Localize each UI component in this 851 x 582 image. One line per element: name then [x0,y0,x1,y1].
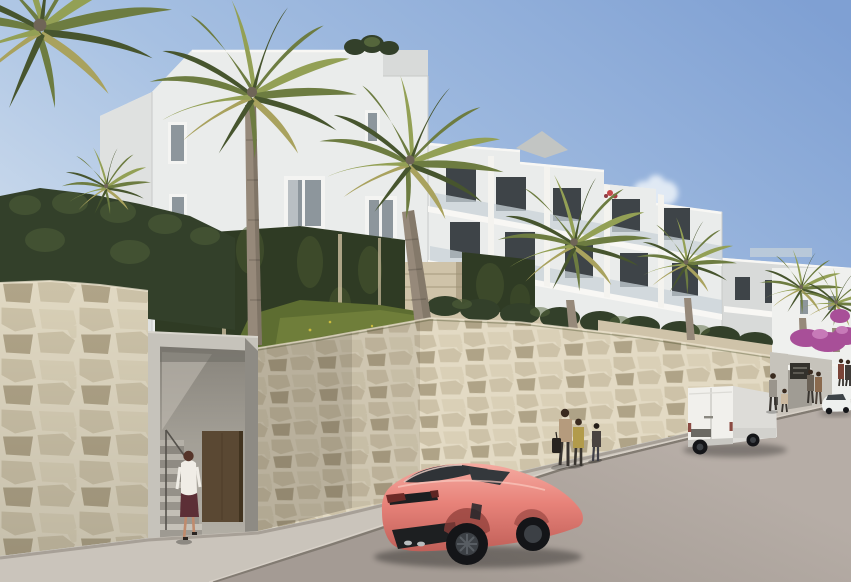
entrance-frame-right [245,338,258,535]
pedestrian-entrance [148,332,258,538]
window [168,122,187,164]
car-side-vent [470,503,482,520]
van-step [691,429,711,437]
shopping-bag [552,438,561,453]
entrance-frame-left [148,332,160,538]
wall-left-section [0,281,148,556]
window [284,176,325,230]
roof-railing-c [750,248,812,257]
architectural-render [0,0,851,582]
